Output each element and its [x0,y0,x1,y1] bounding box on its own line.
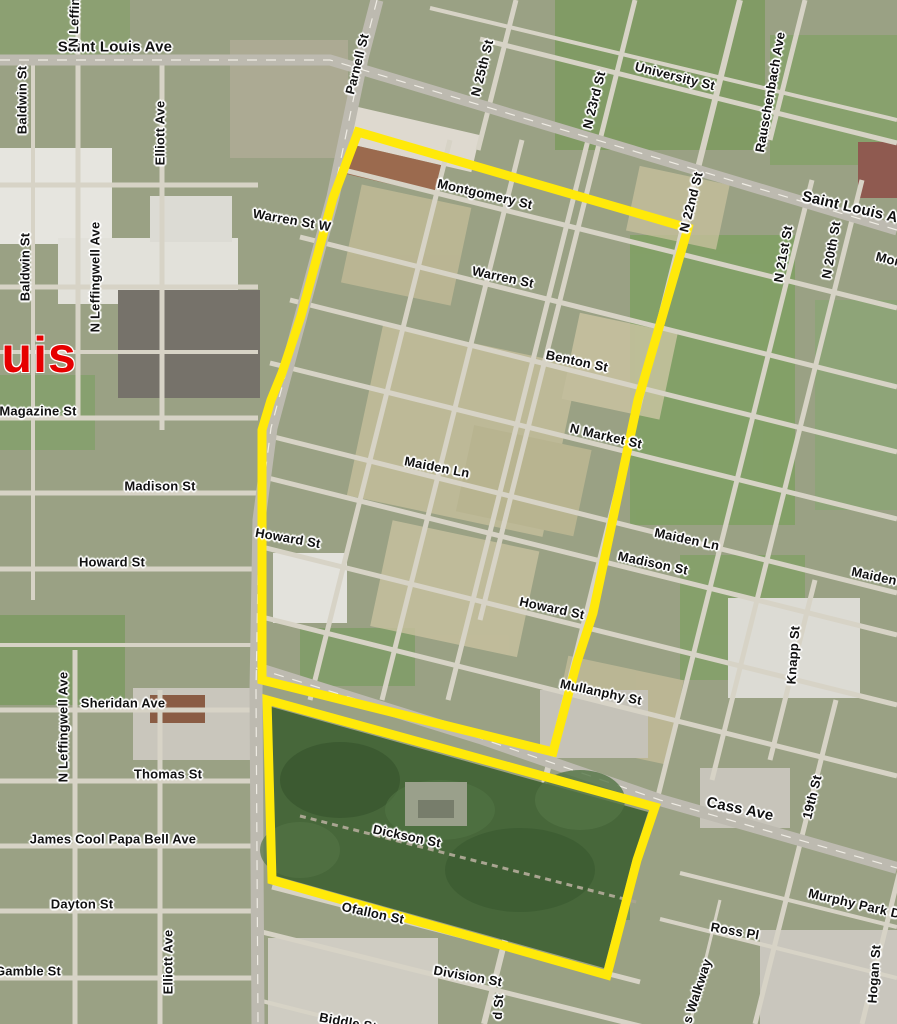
street-label-baldwin-st: Baldwin St [18,233,33,301]
street-label-sheridan-ave: Sheridan Ave [81,696,166,711]
street-label-mor: Mor [874,249,897,269]
street-label-madison-st: Madison St [124,479,195,494]
street-label-elliott-ave: Elliott Ave [161,930,176,995]
street-label-howard-st: Howard St [518,594,586,622]
street-label-19th-st: 19th St [799,773,824,820]
street-label-mullanphy-st: Mullanphy St [559,676,644,708]
street-label-dayton-st: Dayton St [51,897,113,912]
street-label-parnell-st: Parnell St [342,32,372,96]
street-label-elliott-ave: Elliott Ave [153,101,168,166]
street-label-murphy-park-dr: Murphy Park Dr [807,885,897,922]
street-label-benton-st: Benton St [545,347,610,375]
street-label-howard-st: Howard St [254,525,322,551]
street-label-university-st: University St [633,59,716,93]
street-label-n-21st-st: N 21st St [771,224,796,283]
street-label-saint-louis-ave: Saint Louis Ave [800,188,897,230]
street-label-n-20th-st: N 20th St [819,220,844,280]
street-label-ofallon-st: Ofallon St [340,899,405,927]
street-label-warren-st: Warren St [471,263,535,291]
street-label-n-23rd-st: N 23rd St [580,70,609,131]
street-label-maiden-ln: Maiden Ln [850,564,897,592]
street-label-biddle-st: Biddle St [318,1010,378,1024]
aerial-map-view[interactable]: Saint Louis AveSaint Louis AveUniversity… [0,0,897,1024]
street-label-howard-st: Howard St [79,555,145,570]
street-label-madison-st: Madison St [617,548,690,578]
street-label-gamble-st: Gamble St [0,964,61,979]
street-label-thomas-st: Thomas St [134,767,202,782]
street-label-n-leffingwell-ave: N Leffingwell Ave [56,672,71,783]
street-label-s-walkway: s Walkway [680,957,715,1024]
street-label-james-cool-papa-bell-ave: James Cool Papa Bell Ave [30,832,196,847]
street-label-n-leffingwell-ave: N Leffingwell Ave [88,222,103,333]
street-label-maiden-ln: Maiden Ln [653,525,721,553]
street-label-montgomery-st: Montgomery St [436,176,534,212]
street-label-warren-st-w: Warren St W [252,206,332,234]
street-label-n-25th-st: N 25th St [468,38,497,98]
street-label-n-market-st: N Market St [568,420,643,451]
street-labels-layer: Saint Louis AveSaint Louis AveUniversity… [0,0,897,1024]
street-label-rauschenbach-ave: Rauschenbach Ave [752,31,788,154]
street-label-magazine-st: Magazine St [0,404,77,419]
street-label-maiden-ln: Maiden Ln [403,453,471,480]
street-label-d-st: d St [490,994,507,1020]
street-label-hogan-st: Hogan St [864,944,883,1004]
street-label-dickson-st: Dickson St [372,821,443,850]
street-label-baldwin-st: Baldwin St [15,66,30,134]
city-name-label: ouis [0,326,77,384]
street-label-knapp-st: Knapp St [783,625,802,685]
street-label-ross-pl: Ross Pl [710,919,761,942]
street-label-cass-ave: Cass Ave [705,794,775,825]
street-label-division-st: Division St [433,963,504,990]
street-label-n-22nd-st: N 22nd St [676,170,705,234]
